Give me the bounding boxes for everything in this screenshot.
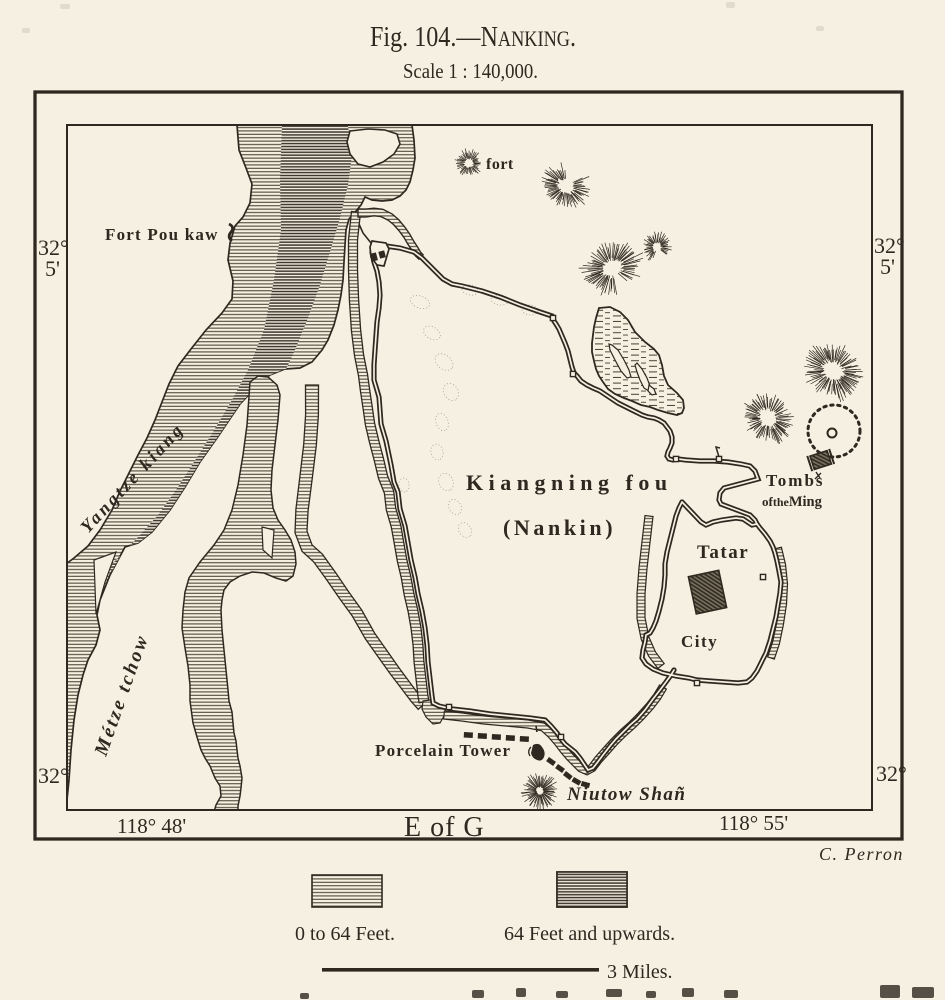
svg-text:118° 55': 118° 55' [719,811,788,835]
svg-text:118° 48': 118° 48' [117,814,186,838]
svg-text:C. Perron: C. Perron [819,844,904,864]
svg-text:0 to 64 Feet.: 0 to 64 Feet. [295,923,395,945]
svg-text:Fort Pou kaw: Fort Pou kaw [105,225,219,244]
svg-text:Tatar: Tatar [697,542,749,563]
svg-text:Porcelain Tower: Porcelain Tower [375,741,511,760]
svg-text:32°: 32° [876,761,907,786]
svg-text:5': 5' [880,254,895,279]
svg-text:oftheMing: oftheMing [762,494,823,510]
svg-text:(Nankin): (Nankin) [503,515,616,540]
svg-text:fort: fort [486,156,514,173]
svg-text:5': 5' [45,256,60,281]
svg-text:3 Miles.: 3 Miles. [607,961,673,983]
svg-text:E of G: E of G [404,812,485,843]
svg-text:City: City [681,632,718,651]
svg-text:32°: 32° [38,763,69,788]
svg-text:64 Feet and upwards.: 64 Feet and upwards. [504,923,675,945]
svg-text:Kiangning fou: Kiangning fou [466,470,673,495]
svg-text:Tombs: Tombs [766,471,825,490]
svg-text:Niutow Shañ: Niutow Shañ [566,784,686,805]
svg-text:Fig. 104.—NANKING.: Fig. 104.—NANKING. [370,21,576,53]
svg-text:Scale 1 : 140,000.: Scale 1 : 140,000. [403,59,538,83]
